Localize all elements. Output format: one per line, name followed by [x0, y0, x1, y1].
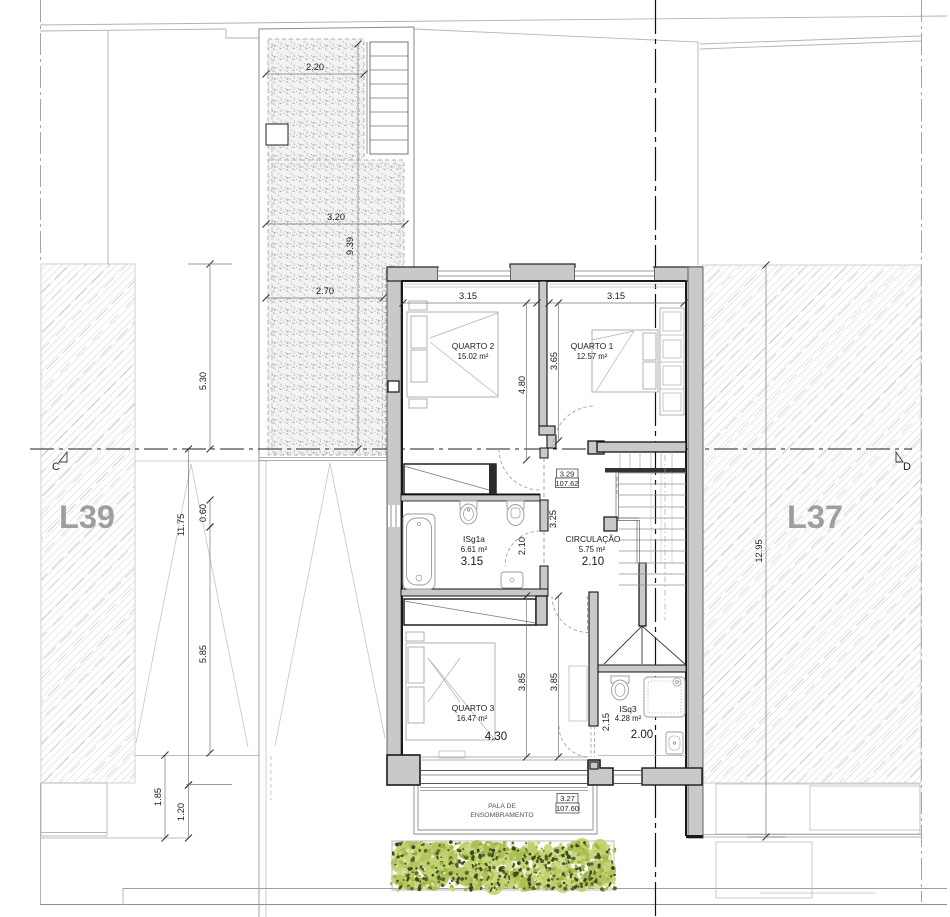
- svg-text:0.60: 0.60: [198, 504, 208, 522]
- svg-text:15.02 m²: 15.02 m²: [458, 352, 489, 361]
- svg-text:CIRCULAÇÃO: CIRCULAÇÃO: [566, 534, 621, 544]
- svg-text:2.15: 2.15: [601, 713, 611, 731]
- svg-text:12.95: 12.95: [754, 539, 764, 562]
- svg-text:107.62: 107.62: [556, 479, 579, 488]
- svg-text:5.75 m²: 5.75 m²: [579, 545, 606, 554]
- svg-text:PALA DE: PALA DE: [488, 803, 516, 810]
- svg-text:1.20: 1.20: [176, 803, 186, 821]
- svg-text:C: C: [52, 461, 60, 473]
- svg-text:3.15: 3.15: [461, 556, 483, 568]
- svg-text:ISg1a: ISg1a: [463, 534, 485, 544]
- svg-text:6.61 m²: 6.61 m²: [461, 545, 488, 554]
- svg-text:L39: L39: [59, 499, 115, 535]
- svg-text:4.28 m²: 4.28 m²: [615, 714, 642, 723]
- svg-text:2.10: 2.10: [517, 537, 527, 555]
- svg-text:ISq3: ISq3: [619, 704, 637, 714]
- svg-text:D: D: [903, 461, 911, 473]
- svg-text:3.65: 3.65: [549, 352, 559, 370]
- svg-text:9.39: 9.39: [345, 237, 355, 255]
- svg-text:3.20: 3.20: [327, 212, 345, 222]
- svg-text:1.85: 1.85: [153, 788, 163, 806]
- svg-text:2.10: 2.10: [582, 556, 604, 568]
- svg-text:3.27: 3.27: [560, 794, 575, 803]
- svg-text:4.80: 4.80: [517, 376, 527, 394]
- svg-text:5.30: 5.30: [198, 372, 208, 390]
- svg-text:5.85: 5.85: [198, 645, 208, 663]
- svg-text:QUARTO 2: QUARTO 2: [452, 341, 495, 351]
- svg-text:4.30: 4.30: [485, 731, 507, 743]
- svg-text:2.20: 2.20: [306, 62, 324, 72]
- svg-text:3.15: 3.15: [459, 291, 477, 301]
- svg-text:L37: L37: [787, 499, 843, 535]
- svg-text:16.47 m²: 16.47 m²: [457, 714, 488, 723]
- svg-text:12.57 m²: 12.57 m²: [577, 352, 608, 361]
- svg-text:3.15: 3.15: [607, 291, 625, 301]
- svg-text:3.29: 3.29: [560, 469, 575, 478]
- svg-text:2.70: 2.70: [316, 286, 334, 296]
- svg-text:107.60: 107.60: [556, 804, 579, 813]
- svg-text:QUARTO 1: QUARTO 1: [571, 341, 614, 351]
- svg-text:ENSOMBRAMENTO: ENSOMBRAMENTO: [470, 812, 533, 819]
- svg-text:3.25: 3.25: [548, 510, 558, 528]
- svg-text:QUARTO 3: QUARTO 3: [452, 703, 495, 713]
- svg-text:3.85: 3.85: [549, 673, 559, 691]
- svg-text:2.00: 2.00: [631, 729, 653, 741]
- svg-text:11.75: 11.75: [176, 514, 186, 537]
- svg-text:3.85: 3.85: [517, 673, 527, 691]
